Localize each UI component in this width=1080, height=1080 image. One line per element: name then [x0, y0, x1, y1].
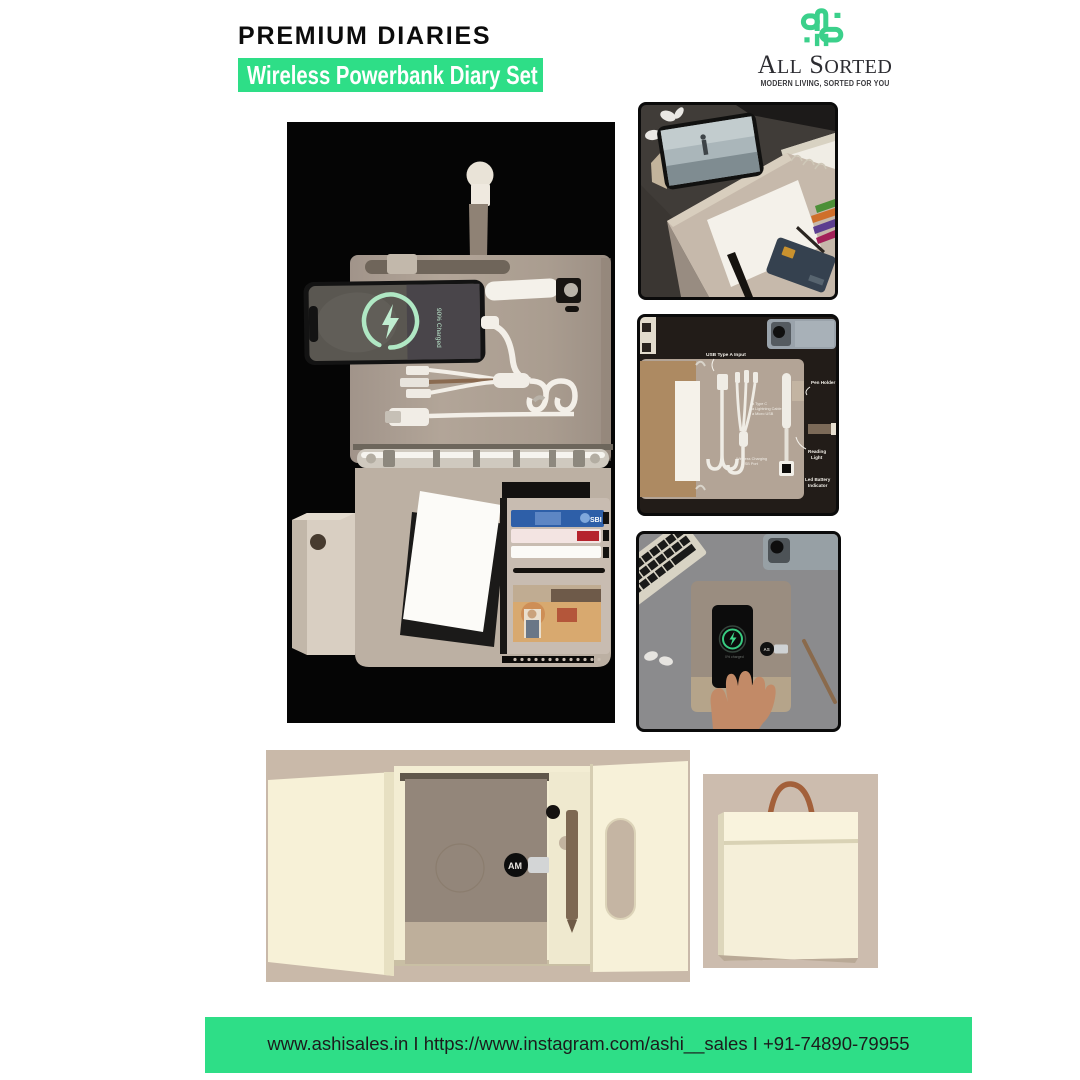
svg-text:0% charged: 0% charged: [725, 655, 744, 659]
svg-text:USB Port: USB Port: [742, 462, 759, 466]
svg-text:Indicator: Indicator: [808, 483, 828, 488]
svg-text:90% Charged: 90% Charged: [435, 308, 442, 348]
svg-text:AS: AS: [764, 647, 770, 652]
svg-text:a Micro USB: a Micro USB: [752, 412, 774, 416]
svg-text:Reading: Reading: [808, 449, 826, 454]
svg-text:Pen Holder: Pen Holder: [811, 380, 835, 385]
svg-text:AM: AM: [508, 861, 522, 871]
svg-text:a Type C: a Type C: [752, 402, 767, 406]
svg-text:Wireless Charging: Wireless Charging: [736, 457, 767, 461]
svg-text:SBI: SBI: [590, 517, 602, 524]
svg-text:USB Type A Input: USB Type A Input: [706, 352, 746, 358]
svg-text:a Lightning Cable: a Lightning Cable: [752, 407, 782, 411]
svg-text:Led Battery: Led Battery: [805, 477, 831, 482]
svg-text:Light: Light: [811, 455, 823, 460]
